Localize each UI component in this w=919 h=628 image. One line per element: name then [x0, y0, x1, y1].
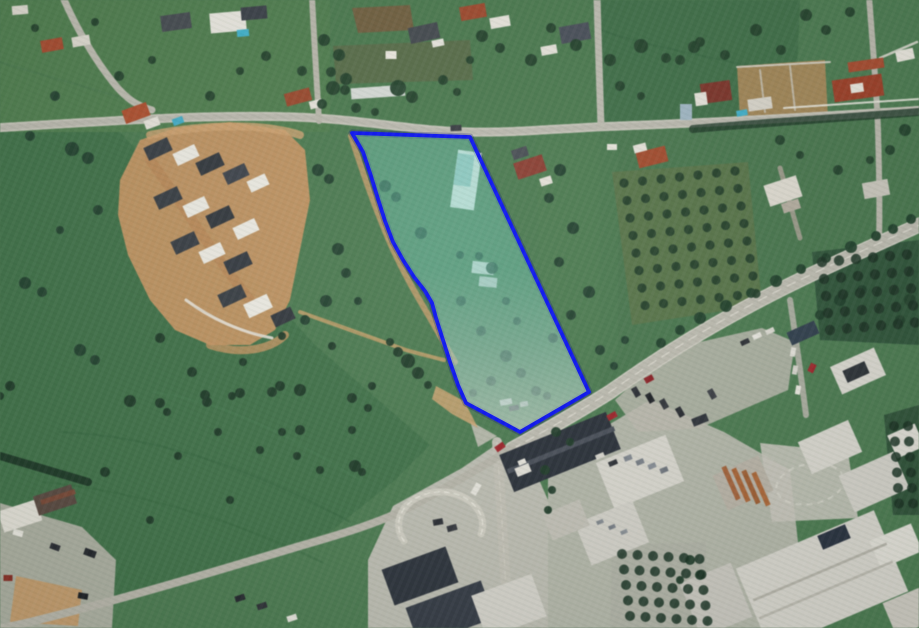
parcel-overlay — [0, 0, 919, 628]
satellite-image — [0, 0, 919, 628]
parcel-boundary — [352, 133, 589, 432]
parcel-boundary-group — [352, 133, 589, 432]
